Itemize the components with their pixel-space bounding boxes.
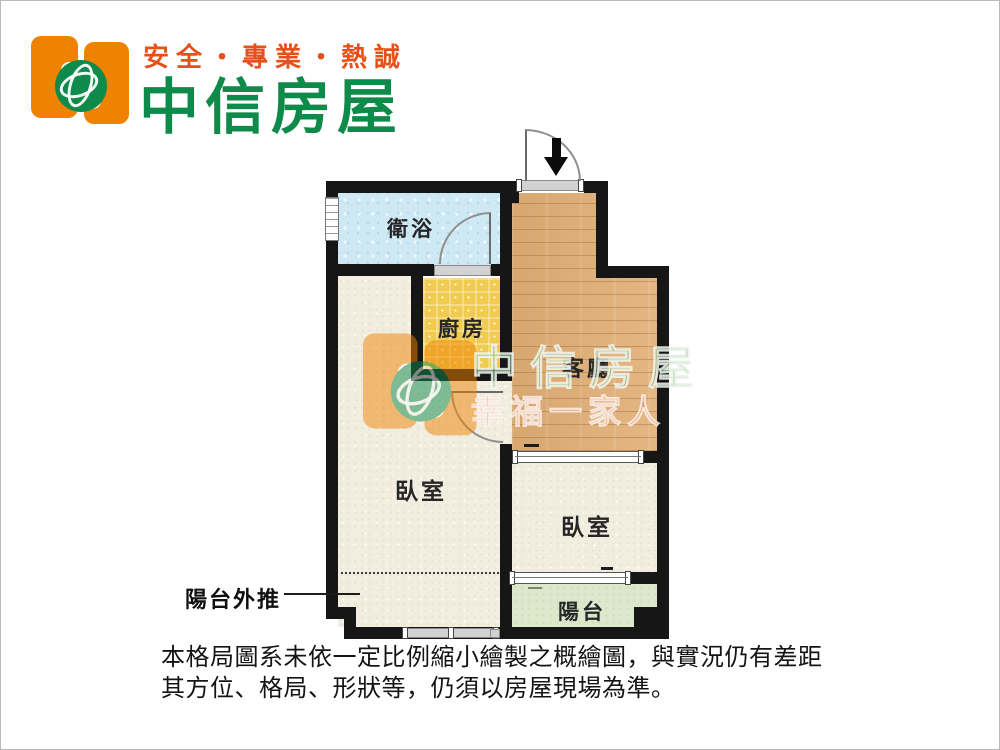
wall — [326, 181, 519, 193]
globe-icon — [391, 361, 451, 421]
window-post — [402, 627, 408, 639]
threshold-post — [516, 179, 522, 192]
disclaimer: 本格局圖系未依一定比例縮小繪製之概繪圖，與實況仍有差距 其方位、格局、形狀等，仍… — [161, 642, 823, 704]
window-handle-mark — [524, 444, 539, 447]
wall — [326, 181, 338, 619]
room-label-balcony: 陽台 — [558, 596, 606, 626]
wall — [500, 444, 512, 639]
room-label-bedroom-left: 臥室 — [395, 472, 447, 506]
disclaimer-line1: 本格局圖系未依一定比例縮小繪製之概繪圖，與實況仍有差距 — [161, 642, 823, 673]
entry-threshold — [517, 180, 583, 191]
window-living-bedroom — [512, 451, 644, 463]
window-post — [625, 571, 631, 585]
disclaimer-line2: 其方位、格局、形狀等，仍須以房屋現場為準。 — [161, 673, 823, 704]
window-post — [448, 627, 454, 639]
window-balcony-notch — [490, 629, 500, 638]
balcony-extension-label: 陽台外推 — [185, 582, 281, 614]
window-bedroom-balcony — [509, 572, 631, 584]
bathroom-threshold — [434, 265, 491, 276]
window-bedroom-left-exterior — [403, 628, 498, 638]
globe-icon — [55, 60, 107, 112]
window-bathroom-exterior — [325, 197, 339, 241]
brand-name: 中信房屋 — [139, 59, 403, 146]
wall — [631, 572, 669, 584]
window-handle-mark — [528, 587, 542, 589]
window-post — [509, 571, 515, 585]
window-post — [512, 450, 518, 464]
wall — [657, 266, 669, 619]
window-handle-mark — [601, 567, 613, 570]
entry-arrow-icon — [552, 138, 561, 159]
window-post — [638, 450, 644, 464]
room-label-bathroom: 衛浴 — [387, 213, 435, 243]
watermark-tagline: 幸福一家人 — [471, 385, 666, 433]
entry-arrow-icon — [544, 157, 568, 176]
dotted-balcony-line — [341, 572, 507, 574]
wall — [491, 264, 512, 276]
annotation-leader-line — [284, 593, 360, 595]
wall — [596, 181, 608, 278]
watermark-logo — [363, 331, 479, 438]
room-label-bedroom-right: 臥室 — [561, 508, 613, 542]
brand-logo — [31, 34, 131, 126]
wall — [644, 451, 669, 463]
floorplan-page: 安全・專業・熱誠 中信房屋 — [0, 0, 1000, 750]
